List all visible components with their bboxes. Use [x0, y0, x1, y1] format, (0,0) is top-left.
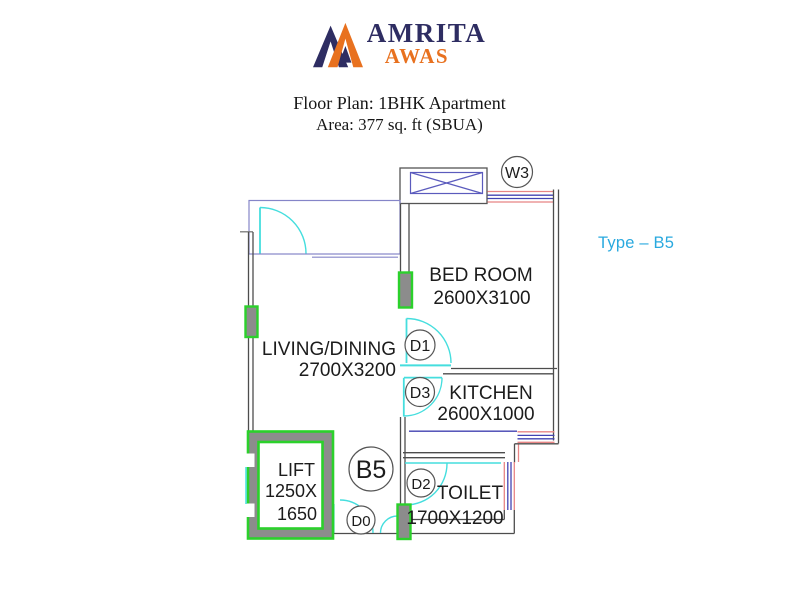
toilet-window — [504, 462, 514, 510]
balcony-outline — [240, 201, 400, 258]
lift-dims-2: 1650 — [277, 504, 317, 524]
marker-d3: D3 — [406, 378, 435, 407]
kitchen-label: KITCHEN — [449, 383, 532, 404]
marker-w3-label: W3 — [505, 165, 529, 182]
bedroom-dims: 2600X3100 — [433, 288, 530, 309]
marker-d0-label: D0 — [351, 513, 370, 530]
marker-d1: D1 — [405, 330, 435, 360]
marker-d2: D2 — [407, 469, 435, 497]
marker-d0: D0 — [347, 506, 375, 534]
bedroom-window — [488, 192, 554, 203]
unit-label: B5 — [356, 456, 387, 484]
bedroom-label: BED ROOM — [429, 265, 532, 286]
toilet-dims: 1700X1200 — [406, 508, 503, 529]
lift-label: LIFT — [278, 460, 315, 480]
lift-dims-1: 1250X — [265, 481, 317, 501]
page: AMRITA AWAS Floor Plan: 1BHK Apartment A… — [0, 0, 799, 589]
floor-plan: W3 D1 D3 D2 D0 B5 BED ROOM 2600X3100 LIV… — [0, 0, 799, 589]
kitchen-window — [518, 432, 555, 443]
balcony-door — [260, 208, 306, 254]
living-dims: 2700X3200 — [299, 360, 396, 381]
marker-d1-label: D1 — [410, 338, 431, 355]
marker-d3-label: D3 — [410, 385, 431, 402]
living-label: LIVING/DINING — [262, 339, 396, 360]
marker-d2-label: D2 — [411, 476, 430, 493]
shaft-box — [400, 168, 487, 204]
toilet-label: TOILET — [437, 483, 504, 504]
unit-marker: B5 — [349, 447, 393, 491]
marker-w3: W3 — [502, 157, 533, 188]
kitchen-dims: 2600X1000 — [437, 404, 534, 425]
